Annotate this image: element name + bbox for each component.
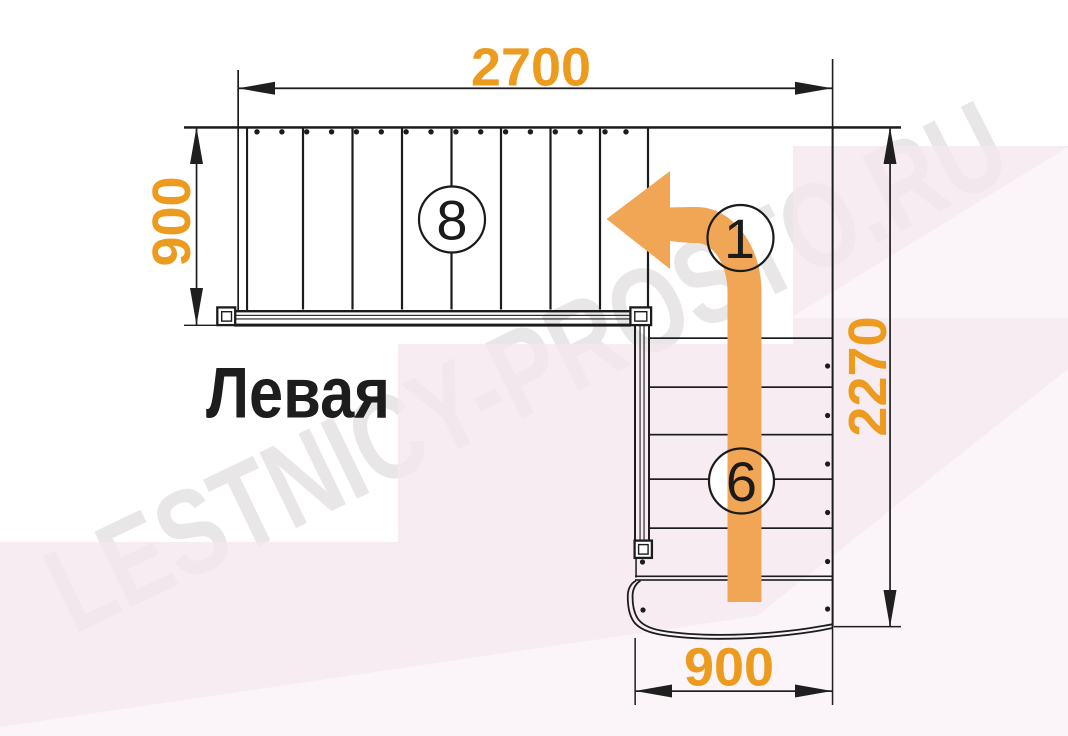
svg-text:900: 900 xyxy=(684,638,774,698)
svg-text:6: 6 xyxy=(726,450,757,513)
svg-text:2700: 2700 xyxy=(471,38,591,98)
svg-text:Левая: Левая xyxy=(206,355,390,434)
svg-text:8: 8 xyxy=(436,189,467,252)
svg-text:1: 1 xyxy=(724,207,755,270)
svg-text:2270: 2270 xyxy=(838,316,898,436)
svg-text:900: 900 xyxy=(142,176,202,266)
